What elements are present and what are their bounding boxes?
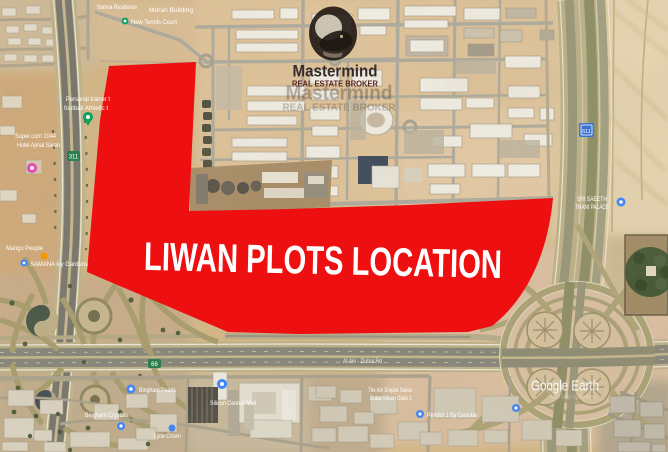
svg-text:SAMANA ivy Gardens: SAMANA ivy Gardens	[30, 261, 89, 268]
svg-text:The Am Empire Suites: The Am Empire Suites	[368, 387, 412, 394]
svg-text:Hotel Ajmal Sarah: Hotel Ajmal Sarah	[17, 142, 60, 149]
svg-text:Peridot 1 By Danube: Peridot 1 By Danube	[427, 412, 477, 419]
svg-text:Super.com 1044: Super.com 1044	[15, 133, 56, 140]
svg-text:Al Ain - Dubai Rd: Al Ain - Dubai Rd	[343, 358, 382, 365]
svg-text:Moran Building: Moran Building	[149, 7, 193, 14]
svg-text:Mastermind: Mastermind	[293, 63, 378, 81]
svg-text:Samna Residence: Samna Residence	[97, 4, 137, 11]
svg-text:Bingham Crystals: Bingham Crystals	[85, 412, 128, 419]
svg-text:Personal trainer t: Personal trainer t	[66, 96, 110, 103]
svg-text:66: 66	[151, 362, 158, 368]
svg-text:SRI SAEETH: SRI SAEETH	[577, 196, 607, 203]
svg-text:Mango People: Mango People	[6, 245, 43, 252]
svg-text:Google Earth: Google Earth	[531, 379, 599, 395]
svg-text:REAL ESTATE BROKER: REAL ESTATE BROKER	[283, 102, 396, 114]
svg-text:Silicon Central Mall: Silicon Central Mall	[210, 400, 256, 407]
svg-text:football Athletic t: football Athletic t	[64, 105, 108, 112]
svg-text:Bingham Pearls: Bingham Pearls	[139, 387, 176, 394]
svg-text:Dubai Silicon Oasis 1: Dubai Silicon Oasis 1	[370, 395, 412, 402]
svg-text:611: 611	[582, 129, 591, 135]
svg-text:THANI PALACE: THANI PALACE	[575, 204, 609, 211]
svg-text:Lyne Crown: Lyne Crown	[154, 433, 181, 440]
svg-text:©2023 Google US Dept Airbus: ©2023 Google US Dept Airbus	[550, 394, 596, 401]
svg-text:311: 311	[69, 155, 79, 161]
svg-text:LIWAN PLOTS LOCATION: LIWAN PLOTS LOCATION	[144, 235, 503, 287]
svg-text:New Tennis Court: New Tennis Court	[131, 19, 177, 26]
